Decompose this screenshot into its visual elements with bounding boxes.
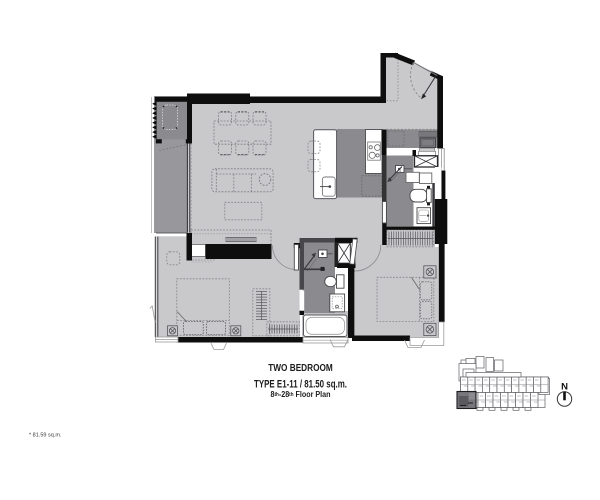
svg-text:TWO BEDROOM: TWO BEDROOM: [268, 363, 333, 374]
svg-text:8th-28th Floor Plan: 8th-28th Floor Plan: [271, 390, 331, 399]
svg-text:N: N: [561, 381, 568, 392]
svg-text:TYPE E1-11 / 81.50 sq.m.: TYPE E1-11 / 81.50 sq.m.: [254, 379, 347, 391]
svg-text:* 81.59 sq.m.: * 81.59 sq.m.: [29, 433, 62, 439]
